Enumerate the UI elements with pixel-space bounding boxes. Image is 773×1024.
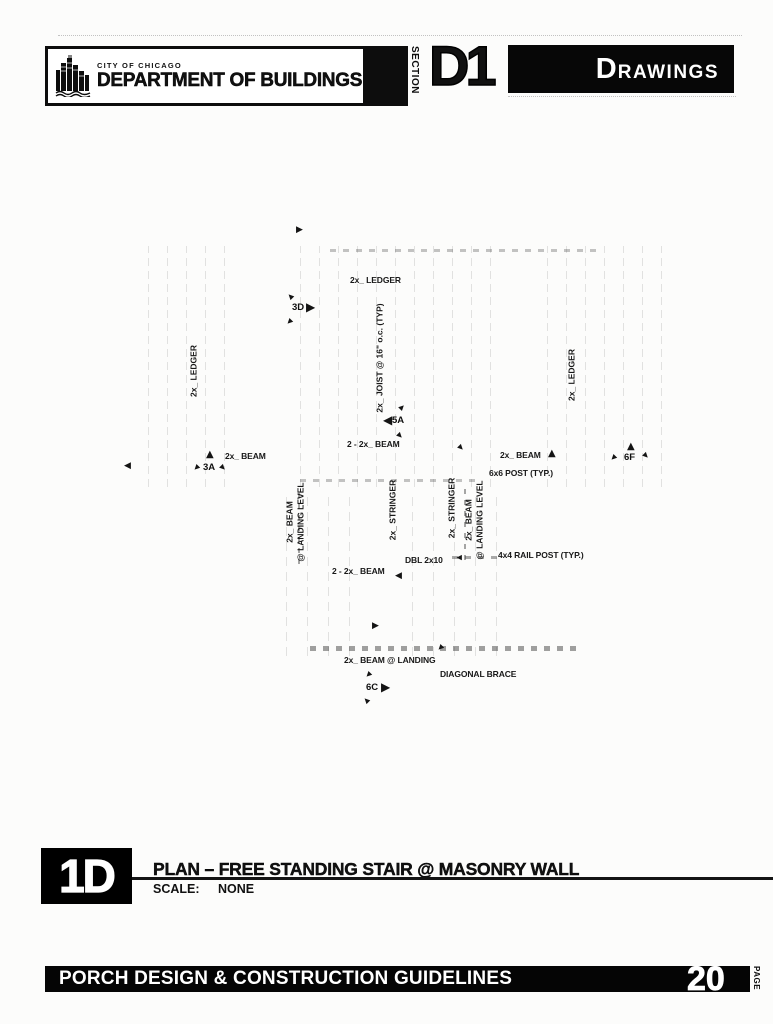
- detail-marker-6C: 6C: [366, 683, 378, 693]
- leader-arrow-icon: ▲: [456, 555, 463, 560]
- footer-bar: PORCH DESIGN & CONSTRUCTION GUIDELINES: [45, 966, 750, 992]
- beam-left-triangle-icon: ▲: [206, 450, 214, 460]
- page-vertical-label: PAGE: [752, 966, 761, 994]
- footer-title: PORCH DESIGN & CONSTRUCTION GUIDELINES: [45, 966, 750, 992]
- label-beam-left: 2x_ BEAM: [225, 452, 266, 461]
- dob-logo-box: CITY OF CHICAGO DEPARTMENT OF BUILDINGS: [45, 46, 408, 106]
- agency-large-label: DEPARTMENT OF BUILDINGS: [97, 71, 362, 90]
- label-stringer-right: 2x_ STRINGER: [447, 478, 458, 538]
- label-ledger-right: 2x_ LEDGER: [567, 349, 578, 401]
- detail-marker-6F: 6F: [624, 453, 635, 463]
- stair-arrow-icon: ▶: [372, 622, 379, 631]
- section-vertical-label: SECTION: [409, 46, 420, 102]
- north-arrow-icon: ▶: [296, 226, 303, 235]
- page-number: 20: [687, 962, 725, 996]
- ledger-dash-line: [330, 249, 600, 252]
- label-rail-post: 4x4 RAIL POST (TYP.): [498, 551, 584, 560]
- landing-beam-dash-line: [310, 646, 582, 651]
- label-beam-landing-right: 2x_ BEAM @ LANDING LEVEL: [463, 480, 484, 559]
- leader-arrow-icon: ▲: [362, 696, 371, 705]
- marker-3D-triangle-icon: ▶: [306, 301, 315, 313]
- logo-black-block: [363, 49, 405, 103]
- label-beam-at-landing: 2x_ BEAM @ LANDING: [344, 656, 436, 665]
- label-post: 6x6 POST (TYP.): [489, 469, 553, 478]
- label-stringer-left: 2x_ STRINGER: [388, 480, 399, 540]
- scale-value: NONE: [218, 882, 254, 896]
- label-ledger-left: 2x_ LEDGER: [189, 345, 200, 397]
- label-beam-landing-left: 2x_ BEAM @ LANDING LEVEL: [284, 482, 305, 561]
- label-ledger-top: 2x_ LEDGER: [350, 276, 401, 285]
- marker-5A-triangle-icon: ◀: [383, 414, 392, 426]
- scan-artifact-line: [58, 35, 742, 36]
- label-beam-upper: 2 - 2x_ BEAM: [347, 440, 400, 449]
- detail-marker-5A: 5A: [392, 416, 404, 426]
- agency-small-label: CITY OF CHICAGO: [97, 62, 362, 70]
- figure-code: 1D: [59, 853, 114, 899]
- beam-right-triangle-icon: ▲: [548, 449, 556, 459]
- scale-label: SCALE:: [153, 882, 200, 896]
- detail-marker-3D: 3D: [292, 303, 304, 313]
- marker-6F-triangle-icon: ▲: [627, 442, 635, 452]
- label-dbl-2x10: DBL 2x10: [405, 556, 443, 565]
- label-joist: 2x_ JOIST @ 16" o.c. (TYP): [375, 303, 386, 412]
- leader-arrow-icon: ▲: [364, 670, 373, 679]
- marker-6C-triangle-icon: ▶: [381, 681, 390, 693]
- label-diagonal-brace: DIAGONAL BRACE: [440, 670, 516, 679]
- figure-code-box: 1D: [41, 848, 132, 904]
- section-code: D1: [429, 38, 493, 94]
- beam-lower-arrow-icon: ◀: [395, 572, 402, 581]
- section-title-label: DRAWINGS: [508, 45, 734, 97]
- edge-arrow-icon: ◀: [124, 462, 131, 471]
- label-beam-lower: 2 - 2x_ BEAM: [332, 567, 385, 576]
- label-beam-right: 2x_ BEAM: [500, 451, 541, 460]
- chicago-skyline-icon: [55, 55, 91, 97]
- document-page: CITY OF CHICAGO DEPARTMENT OF BUILDINGS …: [0, 0, 773, 1024]
- title-rule: [132, 877, 773, 880]
- detail-marker-3A: 3A: [203, 463, 215, 473]
- section-title-bar: DRAWINGS: [508, 45, 734, 93]
